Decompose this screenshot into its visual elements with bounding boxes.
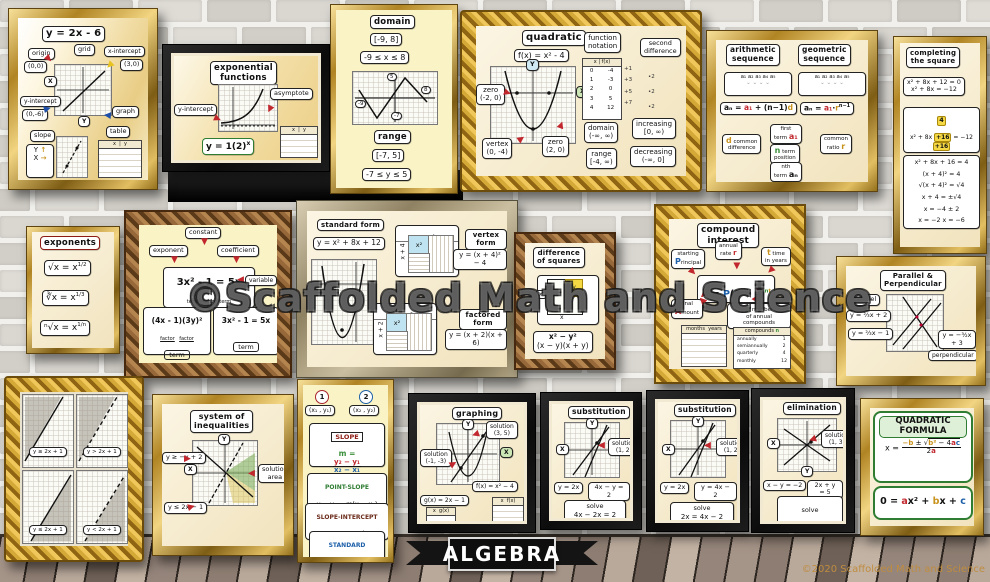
inequality-2: y ≤ 2x − 1 [164,502,207,514]
nth-power-card: ⁿ√x = x1/n [40,320,90,336]
factor-label: factor [160,336,175,342]
r-symbol: r [841,142,845,151]
red-arrow-icon: ▶ [248,468,255,478]
x-axis-label: X [44,76,57,87]
f-table: x f(x) [492,497,524,523]
term-chip: term [164,350,189,360]
slope-icon: Y ↑X → [26,144,54,178]
compound-values: 1 2 4 12 [781,336,787,365]
arithmetic-formula: aₙ = a₁ + (n−1)d [720,102,797,115]
red-arrow-icon: ▶ [598,440,605,450]
range-interval: [-7, 5] [372,149,404,162]
banner-main: ALGEBRA [448,537,556,571]
poster-system-inequalities: system of inequalities Y X y ≥ −x + 2 ▶ … [152,394,294,556]
solution-area-label: solution area [258,464,284,483]
formula-factored: (x − y)(x + y) [537,341,589,350]
vertex-label: vertex(0, -4) [482,138,512,159]
quadratic-table-body: 0 1 2 3 4 -4 -3 0 5 12 [583,67,621,114]
substitution-title: substitution [674,404,736,417]
tally-cell [408,253,430,273]
a-symbol: a [931,447,936,455]
equation-line2: x² + 8x = −12 [911,86,957,93]
solve-card: solve + x − y = −2 2x + y = 5 [777,496,843,524]
second-difference-label: second difference [640,38,681,57]
red-arrow-down-icon: ▼ [171,255,178,265]
m-equals: m = [339,449,356,458]
slope-card: SLOPE m = y₂ − y₁x₂ − x₁ [309,423,385,467]
origin-point: (0,0) [24,61,47,73]
neg-b: −b [903,439,914,447]
diffsq-formula: x² − y²(x − y)(x + y) [533,331,593,353]
slope-intercept-title: SLOPE-INTERCEPT [316,514,377,521]
formula-exponent: 1/n [77,322,86,328]
plus-minus: ± [913,439,923,447]
f-equation: f(x) = x² − 4 [472,481,518,492]
range-card: range[-4, ∞) [586,148,617,169]
perpendicular-label: perpendicular [928,350,976,361]
parallel-title: Parallel & Perpendicular [880,270,946,291]
equation-1: x − y = −2 [763,480,806,491]
solve-card: solve4x − 2x = 2 [564,500,626,521]
n-symbol: n [775,146,781,155]
poster-elim-content: elimination X Y solution (1, 3) ▶ x − y … [760,397,846,524]
brick [35,189,99,211]
quadratic-table: x | f(x) 0 1 2 3 4 -4 -3 0 5 12 [582,58,622,120]
g-table: x g(x) [426,507,456,523]
brick [104,189,168,211]
poster-elimination: elimination X Y solution (1, 3) ▶ x − y … [751,388,855,533]
tally-cell [386,331,408,351]
diagram-eq: = −12 [951,134,973,141]
solve-word: solve [693,504,710,512]
slope-icon-y: Y [34,146,38,154]
up-arrow-icon: ↑ [40,146,46,154]
parallel-eq2: y = ⅔x − 1 [848,328,893,340]
poster-sub1-content: substitution Y X solution (1, 2) ▶ y = 2… [549,401,633,521]
substitution-title: substitution [568,406,630,419]
slope-title: SLOPE [331,432,362,442]
an-symbol: aₙ [789,170,798,179]
slope-icon-x: X [34,154,39,162]
increasing-value: [0, ∞) [644,128,664,136]
linear-table-header: x | y [99,141,141,149]
tally-cell [428,235,454,273]
col-fx: f(x) [602,59,611,65]
range-label: range [374,130,411,144]
point-2-badge: 2 [359,390,373,404]
algebra-banner: ALGEBRA [406,537,598,573]
y-axis-label: Y [218,434,230,445]
g-table-rows [427,516,455,524]
compound-names: annually semiannually quarterly monthly [737,336,768,365]
quadratic-title: quadratic [522,30,586,46]
plus: + [946,496,961,507]
poster-graphing: graphing Y X solution (3, 5) solution (-… [408,393,536,533]
range-word: range [591,150,611,158]
x-squared-cell: x² [408,235,430,255]
poster-substitution-2: substitution Y X solution (1, 2) ▶ y = 2… [646,390,749,532]
point-1-coords: (x₁ , y₁) [305,405,335,416]
compounds-table-header: compounds n [734,328,790,336]
decreasing-value: (-∞, 0] [642,156,665,164]
increasing-word: increasing [636,120,672,128]
solution-label: solution (1, 2) [608,438,633,456]
term-position-card: n term position [770,144,800,164]
g-equation: g(x) = 2x − 1 [420,495,469,506]
equation-line1: x² + 8x + 12 = 0 [907,79,961,86]
pane-gt-label: y > 2x + 1 [83,447,121,457]
time-label: time [772,251,784,257]
geometric-terms: a₁ a₂ a₃ a₄ a₅⌄ ⌄ ⌄ ⌄ [798,72,866,96]
brick [518,189,582,211]
zero-word: zero [483,86,498,94]
table-label: table [106,126,130,138]
exponents-title: exponents [40,236,100,250]
x-axis-label: X [500,447,513,458]
common-difference-label: common difference [728,139,758,151]
diagram-card: 4 x² + 8x +16 = −12 +16 [903,107,980,153]
poster-quadratic-formula: QUADRATIC FORMULA x = −b ± √b² − 4ac2a 0… [860,398,984,536]
c-symbol: c [960,496,966,507]
function-notation-label: function notation [584,32,621,53]
formula-numerator: x² − y² [549,332,577,341]
pane-ge-label: y ≥ 2x + 1 [29,447,67,457]
third-power-card: ∛x = x1/3 [42,290,89,306]
factor-label: factor [179,336,194,342]
range-value: [-4, ∞) [590,158,613,166]
col-y: y [303,127,306,133]
time-sub-label: in years [765,258,787,264]
r-symbol: r [733,249,736,257]
plus-sign: + [788,523,793,524]
pane-lt: y < 2x + 1 [76,470,128,544]
terms: a₁ a₂ a₃ a₄ a₅ [815,74,850,80]
formula-part: aₙ = [804,104,824,113]
diff-arrows-icon: ⌄ ⌄ ⌄ ⌄ [746,80,770,86]
months-years-table: months years [681,325,727,367]
red-arrow-icon: ▶ [731,263,741,270]
elimination-title: elimination [783,402,841,415]
poster-completing-content: completing the square x² + 8x + 12 = 0x²… [900,43,980,247]
x-axis-label: X [767,438,780,449]
solution-2-label: solution (-1, -3) [420,449,452,467]
linear-mini-graph [54,64,112,116]
banner-text: ALGEBRA [443,542,561,566]
equation-base: y = 1(2) [206,142,246,152]
poster-linear-graph: y = 2x - 6 origin (0,0) grid x-intercept… [8,8,158,190]
second-differences: •2 •2 •2 [648,70,655,115]
poster-linear-forms: 1 (x₁ , y₁) 2 (x₂ , y₂) SLOPE m = y₂ − y… [297,379,394,563]
linear-title: y = 2x - 6 [42,26,105,42]
decreasing-word: decreasing [634,148,672,156]
plus16-chip: +16 [933,142,950,151]
zero-equals: 0 = [880,496,901,507]
poster-system-content: system of inequalities Y X y ≥ −x + 2 ▶ … [162,404,284,546]
equation-1: y = 2x [660,482,689,494]
pane-lt-label: y < 2x + 1 [83,525,121,535]
exponent: n−1 [839,103,850,109]
domain-interval: [-9, 8] [370,33,402,46]
slope-label: slope [30,130,55,142]
completing-title: completing the square [906,47,960,68]
solution-1-label: solution (3, 5) [486,421,518,439]
formula-base: ⁿ√x = x [44,323,77,333]
minus-4: − 4 [936,439,951,447]
poster-sub2-content: substitution Y X solution (1, 2) ▶ y = 2… [655,399,740,523]
domain-value: (-∞, ∞) [589,132,613,140]
poster-graphing-content: graphing Y X solution (3, 5) solution (-… [417,402,527,524]
zero-left-label: zero(-2, 0) [476,84,505,105]
plus: + [918,496,933,507]
solve-equation: 2x = 4x − 2 [681,513,723,521]
x-axis-label: X [184,464,197,475]
term-chip: term [233,342,258,352]
exponent-label: exponent [149,245,188,257]
poster-quadformula-content: QUADRATIC FORMULA x = −b ± √b² − 4ac2a 0… [870,408,974,526]
brick [897,0,961,22]
y-axis-label: Y [692,416,704,427]
standard-form-card: 0 = ax² + bx + c [873,486,973,520]
exponential-table-rows [281,135,317,159]
exponential-table-header: x | y [281,127,317,135]
solution-steps: x² + 8x + 16 = 4 (x + 4)² = 4 √(x + 4)² … [903,155,980,229]
poster-exponents-content: exponents √x = x1/2 ∛x = x1/3 ⁿ√x = x1/n [32,232,114,348]
poster-substitution-1: substitution Y X solution (1, 2) ▶ y = 2… [540,392,642,530]
standard-title: STANDARD [329,542,366,549]
ratio-arrows-icon: ⌄ ⌄ ⌄ ⌄ [820,80,844,86]
vertex-form-label: vertex form [465,229,507,250]
vertex-point: (0, -4) [487,148,508,156]
col-x: x [292,127,295,133]
pane-gt: y > 2x + 1 [76,394,128,468]
problem-card: x² + 8x + 12 = 0x² + 8x = −12 [903,77,965,96]
quad-formula-title: QUADRATIC FORMULA [879,416,967,438]
months-table-rows [682,334,726,368]
solution-label: solution (1, 3) [821,430,846,448]
quadratic-graph [490,66,576,144]
poster-domain-content: domain [-9, 8] -9 ≤ x ≤ 8 5 8 -9 -7 rang… [336,10,452,188]
point-slope-title: POINT-SLOPE [325,484,369,491]
poster-exponential-content: exponential functions y-intercept asympt… [171,53,321,163]
zero-word: zero [548,138,563,146]
perpendicular-eq: y = −³⁄₂x + 3 [938,330,976,349]
common-ratio-card: common ratio r [820,134,852,154]
factored-form-equation: y = (x + 2)(x + 6) [445,329,507,350]
poster-linear-content: y = 2x - 6 origin (0,0) grid x-intercept… [18,18,148,180]
domain-card: domain(-∞, ∞) [584,122,618,143]
linear-graph-svg [55,65,111,115]
y-axis-label: Y [526,59,539,71]
rate-card: annual rate r [715,241,742,260]
starting-label: starting [677,251,698,257]
linear-table-rows [99,149,141,179]
quadratic-graph-svg [491,67,575,143]
f-table-rows [493,506,523,524]
equation-2: 4x − y = 2 [588,482,630,501]
tick-8: 8 [421,86,431,94]
arithmetic-title: arithmetic sequence [726,44,780,66]
poster-quadratic-content: quadratic f(x) = x² - 4 Y X zero(-2, 0) … [476,26,686,176]
half-power-card: √x = x1/2 [44,260,91,276]
range-inequality: -7 ≤ y ≤ 5 [362,168,411,181]
x-intercept-point: (3,0) [120,59,143,71]
solve-card: solve2x = 4x − 2 [670,502,734,523]
brick [828,216,892,238]
principal-card: startingPrincipal [671,249,705,269]
diagram-eq: x² + 8x [910,134,934,141]
terms: a₁ a₂ a₃ a₄ a₅ [741,74,776,80]
compounds-table: compounds n annually semiannually quarte… [733,327,791,369]
red-arrow-icon: ▶ [184,454,191,464]
graph-label: graph [112,106,139,118]
geometric-formula: aₙ = a₁·rn−1 [800,102,854,115]
f-table-header: x f(x) [493,498,523,506]
poster-lineforms-content: 1 (x₁ , y₁) 2 (x₂ , y₂) SLOPE m = y₂ − y… [303,385,388,557]
x-equals: x = [885,443,902,452]
brick [0,189,30,211]
brick [35,351,99,373]
solve-word: solve [586,502,603,510]
compounds-header: compounds [745,328,774,334]
vertex-form-equation: y = (x + 4)² − 4 [453,249,507,270]
poster-sequences: arithmetic sequence geometric sequence a… [706,30,878,192]
quadratic-table-header: x | f(x) [583,59,621,67]
y-axis-label: Y [586,418,598,429]
grid-label: grid [74,44,95,56]
x-axis-label: X [556,444,569,455]
geometric-title: geometric sequence [798,44,851,66]
x-values: 0 1 2 3 4 [590,67,594,114]
pane-ge: y ≥ 2x + 1 [22,394,74,468]
principal-label: rincipal [681,260,701,266]
red-arrow-down-icon: ▼ [201,237,208,247]
equation-1: y = 2x [554,482,583,494]
plus16-chip: +16 [934,133,951,142]
col-x: x [594,59,597,65]
nth-term-card: nth term aₙ [770,162,802,182]
increasing-card: increasing[0, ∞) [632,118,676,139]
zero-left-point: (-2, 0) [480,94,501,102]
brick [828,0,892,22]
col-x: x [113,141,116,147]
point-2-coords: (x₂ , y₂) [349,405,379,416]
common-difference-symbol: d [788,103,793,112]
months-table-header: months years [682,326,726,334]
domain-graph: 5 8 -9 -7 [352,71,438,125]
asymptote-label: asymptote [270,88,313,100]
domain-word: domain [588,124,614,132]
formula-base: ∛x = x [46,293,76,303]
graphing-title: graphing [452,407,502,420]
tick-5: 5 [387,73,397,81]
n-header: n [776,328,780,334]
quadratic-equation: f(x) = x² - 4 [514,49,569,62]
poster-exponents: exponents √x = x1/2 ∛x = x1/3 ⁿ√x = x1/n [26,226,120,354]
parallel-graph [886,294,944,352]
equation-exponent: x [246,140,250,147]
poster-sequences-content: arithmetic sequence geometric sequence a… [716,40,868,182]
diffsq-title: difference of squares [533,247,585,268]
equation-2: y = 4x − 2 [694,482,737,501]
zero-right-point: (2, 0) [546,146,565,154]
brick [966,0,990,22]
poster-completing-square: completing the square x² + 8x + 12 = 0x²… [893,36,987,254]
half-coefficient-chip: 4 [937,116,946,126]
col-y: y [124,141,127,147]
poster-panes-content: y ≥ 2x + 1 y > 2x + 1 y ≤ 2x + 1 y < 2x … [20,392,128,546]
g-table-header: x g(x) [427,508,455,516]
x-intercept-label: x-intercept [104,46,145,57]
standard-form-label: standard form [317,219,384,231]
first-term-card: first term a₁ [770,124,802,144]
solve-line-1: x − y = −2 [796,523,832,524]
exponential-title: exponential functions [210,61,277,85]
fx-values: -4 -3 0 5 12 [607,67,614,114]
y-intercept-label: y-intercept [20,96,61,107]
y-axis-label: Y [78,116,90,127]
algebra-word-wall-scene: y = 2x - 6 origin (0,0) grid x-intercept… [0,0,990,582]
formula-exponent: 1/3 [76,292,85,298]
y-axis-label: Y [801,466,813,477]
decreasing-card: decreasing(-∞, 0] [630,146,676,167]
compounds-table-body: annually semiannually quarterly monthly … [734,336,790,365]
t-symbol: t [767,248,771,257]
zero-right-label: zero(2, 0) [542,136,569,157]
model-side-label: x + 4 [400,243,407,259]
solution-label: solution (1, 2) [716,438,740,456]
slope-graph-svg [57,137,87,177]
right-arrow-icon: → [41,154,47,162]
poster-domain-range: domain [-9, 8] -9 ≤ x ≤ 8 5 8 -9 -7 rang… [330,4,458,194]
formula-exponent: 1/2 [78,262,87,268]
exponential-equation: y = 1(2)x [202,138,254,155]
system-title: system of inequalities [190,410,253,433]
time-card: t timein years [761,247,791,266]
red-arrow-down-icon: ▼ [233,255,240,265]
formula-part: aₙ = [724,103,744,112]
slope-mini-graph [56,136,88,178]
linear-table: x | y [98,140,142,178]
formula-part: + (n−1) [752,103,787,112]
blue-arrow-icon: ▶ [104,110,112,121]
poster-exponential: exponential functions y-intercept asympt… [162,44,330,172]
solve-equation: 4x − 2x = 2 [574,511,616,519]
brick [759,0,823,22]
brick [207,0,271,22]
pane-le-label: y ≤ 2x + 1 [29,525,67,535]
x-axis-label: X [662,444,675,455]
standard-form-equation: y = x² + 8x + 12 [313,237,385,250]
red-arrow-icon: ▶ [704,440,711,450]
formula-base: √x = x [48,263,78,273]
domain-label: domain [370,15,415,29]
x-squared: x² [908,496,918,507]
model-side-label: x + 2 [378,321,385,337]
formula-card: QUADRATIC FORMULA x = −b ± √b² − 4ac2a [873,411,973,483]
first-differences: +1 +3 +5 +7 [624,64,632,109]
poster-quadratic: quadratic f(x) = x² - 4 Y X zero(-2, 0) … [460,10,702,192]
d-symbol: d [726,136,732,145]
brick [587,189,651,211]
watermark: ©Scaffolded Math and Science [186,276,872,320]
poster-inequality-panes: y ≥ 2x + 1 y > 2x + 1 y ≤ 2x + 1 y < 2x … [4,376,144,562]
first-term-symbol: a₁ [789,132,798,141]
copyright-text: ©2020 Scaffolded Math and Science [802,564,985,575]
point-1-badge: 1 [315,390,329,404]
c-symbol: c [956,439,960,447]
pane-le: y ≤ 2x + 1 [22,470,74,544]
standard-card: STANDARD ax + by = c [309,531,385,557]
